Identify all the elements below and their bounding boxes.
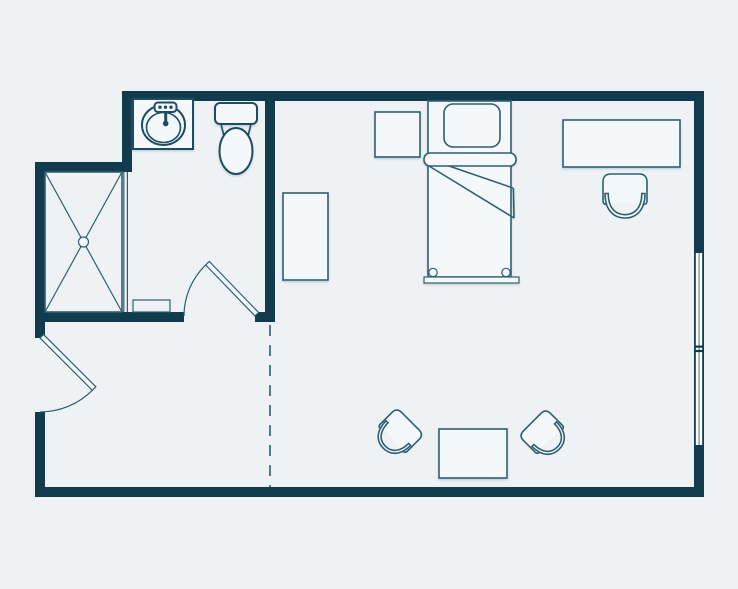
faucet-handle-dot bbox=[164, 106, 167, 109]
bathroom-bottom-wall bbox=[35, 312, 184, 322]
left-wall-lower bbox=[35, 412, 45, 497]
pillow bbox=[444, 104, 500, 147]
faucet-handle-dot bbox=[169, 106, 172, 109]
shower-threshold bbox=[133, 300, 170, 312]
coffee-table bbox=[439, 429, 507, 478]
left-wall-upper bbox=[35, 162, 45, 338]
entry-door-swing-arc bbox=[40, 390, 92, 412]
nightstand bbox=[375, 112, 420, 157]
bottom-wall bbox=[35, 487, 704, 497]
right-wall-upper bbox=[694, 91, 704, 253]
armchair-left bbox=[370, 408, 424, 462]
faucet-spout bbox=[164, 112, 167, 122]
window-inner-line bbox=[702, 253, 704, 445]
window-outer-line bbox=[694, 253, 696, 445]
faucet-handle-dot bbox=[158, 106, 161, 109]
shower-drain bbox=[79, 237, 89, 247]
shower bbox=[45, 172, 170, 312]
footboard bbox=[424, 277, 519, 283]
window-mullion-bottom bbox=[694, 350, 704, 352]
blanket-band bbox=[424, 153, 516, 166]
bathroom-door bbox=[184, 261, 259, 316]
window-glass-line bbox=[698, 253, 700, 445]
bathroom-right-wall bbox=[265, 101, 275, 322]
bathroom-left-wall bbox=[122, 91, 132, 172]
bed bbox=[424, 101, 519, 283]
sink-vanity bbox=[133, 99, 193, 149]
entry-door-leaf bbox=[40, 334, 96, 390]
dresser bbox=[283, 193, 328, 280]
entry-door bbox=[40, 334, 96, 412]
toilet-tank bbox=[215, 103, 257, 124]
bed-foot-left bbox=[429, 268, 437, 276]
desk-chair bbox=[603, 174, 647, 218]
armchair-right bbox=[519, 409, 573, 463]
bed-foot-right bbox=[502, 268, 510, 276]
floor-plan-image bbox=[0, 0, 738, 589]
window-right bbox=[694, 253, 704, 445]
toilet bbox=[215, 103, 257, 174]
faucet-spout-tip bbox=[163, 121, 169, 127]
window-mullion-top bbox=[694, 346, 704, 348]
desk bbox=[563, 120, 680, 167]
top-wall bbox=[122, 91, 704, 101]
bathroom-door-leaf bbox=[206, 261, 259, 316]
bathroom-step-wall bbox=[35, 162, 132, 172]
floor-plan bbox=[0, 0, 738, 589]
toilet-bowl bbox=[220, 128, 253, 174]
bathroom-door-swing-arc bbox=[184, 265, 206, 316]
